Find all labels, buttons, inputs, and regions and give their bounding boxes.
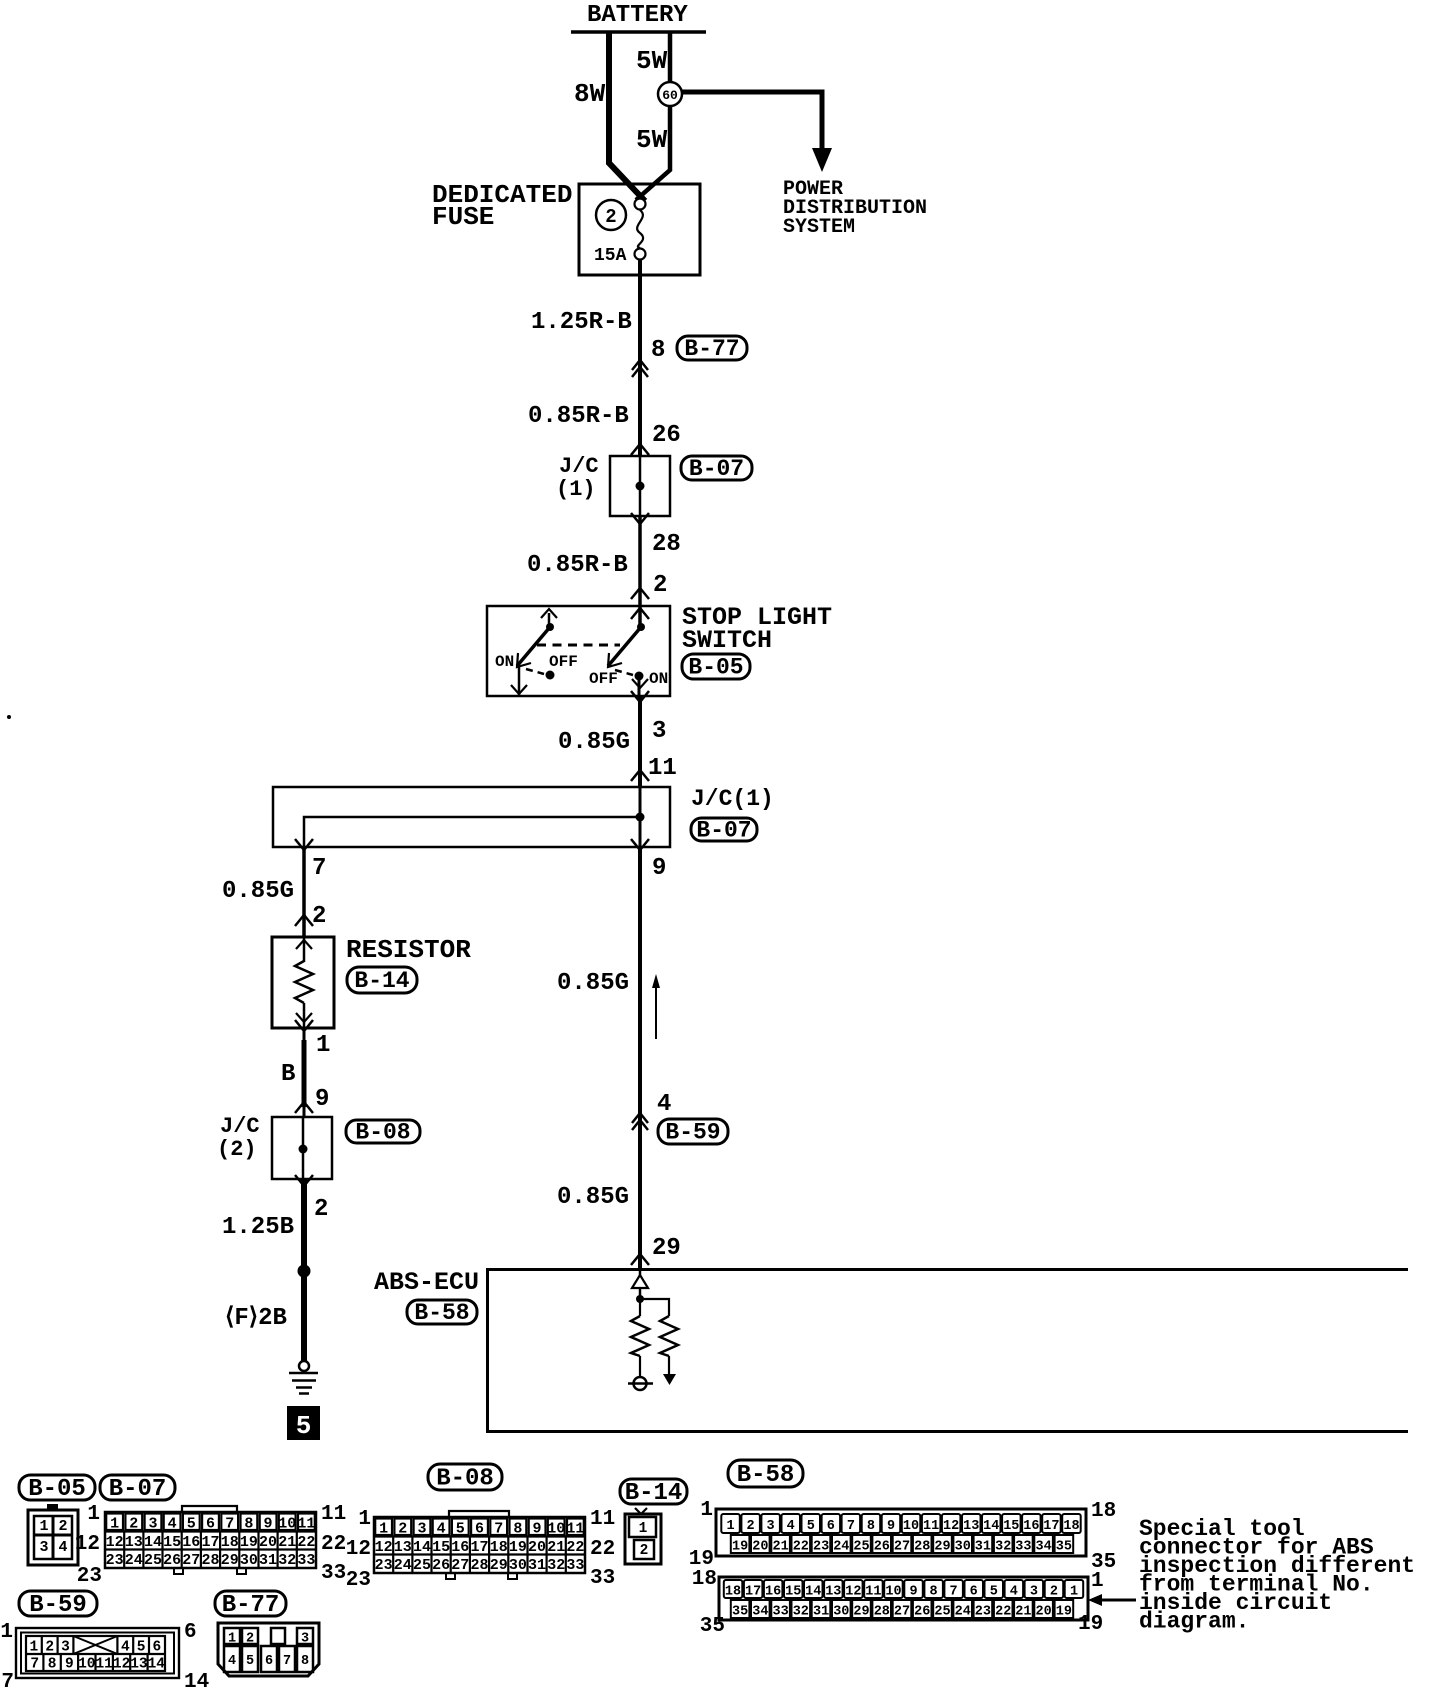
- svg-text:33: 33: [566, 1557, 584, 1574]
- svg-text:21: 21: [278, 1534, 296, 1551]
- svg-text:15: 15: [163, 1534, 181, 1551]
- svg-text:16: 16: [451, 1539, 469, 1556]
- svg-text:28: 28: [874, 1605, 890, 1620]
- svg-text:0.85G: 0.85G: [222, 878, 294, 905]
- svg-text:6: 6: [827, 1519, 835, 1534]
- svg-text:B-77: B-77: [684, 336, 739, 362]
- svg-text:19: 19: [1078, 1613, 1103, 1636]
- svg-text:16: 16: [765, 1585, 781, 1600]
- svg-text:5W: 5W: [636, 46, 668, 76]
- svg-text:27: 27: [894, 1540, 910, 1555]
- svg-text:11: 11: [566, 1521, 584, 1538]
- svg-text:31: 31: [813, 1605, 829, 1620]
- svg-text:25: 25: [853, 1540, 869, 1555]
- svg-text:11: 11: [321, 1503, 346, 1526]
- svg-text:9: 9: [532, 1521, 541, 1538]
- svg-text:6: 6: [265, 1654, 273, 1669]
- svg-text:10: 10: [278, 1516, 296, 1533]
- svg-text:8W: 8W: [574, 79, 606, 109]
- svg-text:23: 23: [346, 1569, 371, 1592]
- svg-text:6: 6: [206, 1516, 215, 1533]
- svg-text:2: 2: [653, 572, 667, 599]
- svg-text:J/C: J/C: [559, 454, 599, 479]
- svg-text:8: 8: [244, 1516, 253, 1533]
- svg-text:3: 3: [1030, 1585, 1038, 1600]
- svg-text:9: 9: [887, 1519, 895, 1534]
- svg-text:26: 26: [914, 1605, 930, 1620]
- svg-text:3: 3: [39, 1539, 48, 1556]
- svg-text:B-08: B-08: [355, 1119, 410, 1145]
- svg-text:7: 7: [312, 855, 326, 882]
- svg-text:27: 27: [894, 1605, 910, 1620]
- svg-text:SYSTEM: SYSTEM: [783, 216, 855, 239]
- svg-text:0.85G: 0.85G: [558, 729, 630, 756]
- svg-text:1: 1: [0, 1621, 13, 1644]
- svg-text:33: 33: [590, 1567, 615, 1590]
- svg-text:11: 11: [648, 755, 677, 782]
- svg-text:B-59: B-59: [29, 1592, 87, 1619]
- svg-text:7: 7: [1, 1671, 14, 1690]
- svg-text:1: 1: [110, 1516, 119, 1533]
- svg-text:13: 13: [394, 1539, 412, 1556]
- svg-text:B-58: B-58: [737, 1462, 795, 1489]
- svg-text:12: 12: [375, 1539, 393, 1556]
- svg-text:35: 35: [732, 1605, 748, 1620]
- svg-text:15: 15: [785, 1585, 801, 1600]
- svg-text:(2): (2): [217, 1137, 257, 1162]
- svg-text:6: 6: [184, 1621, 197, 1644]
- svg-text:21: 21: [1015, 1605, 1031, 1620]
- svg-text:19: 19: [1056, 1605, 1072, 1620]
- svg-text:5: 5: [246, 1654, 254, 1669]
- svg-text:8: 8: [930, 1585, 938, 1600]
- svg-text:8: 8: [48, 1657, 57, 1673]
- svg-text:3: 3: [61, 1640, 70, 1656]
- svg-text:1.25R-B: 1.25R-B: [531, 309, 632, 336]
- svg-text:9: 9: [315, 1086, 329, 1113]
- svg-text:22: 22: [566, 1539, 584, 1556]
- svg-text:4: 4: [787, 1519, 795, 1534]
- svg-text:B-14: B-14: [625, 1480, 683, 1507]
- svg-text:10: 10: [547, 1521, 565, 1538]
- svg-text:29: 29: [934, 1540, 950, 1555]
- svg-text:18: 18: [221, 1534, 239, 1551]
- svg-text:11: 11: [297, 1516, 315, 1533]
- svg-text:20: 20: [528, 1539, 546, 1556]
- svg-text:22: 22: [793, 1540, 809, 1555]
- svg-text:2: 2: [58, 1518, 67, 1535]
- svg-text:ON: ON: [495, 653, 514, 671]
- svg-text:33: 33: [321, 1562, 346, 1585]
- svg-text:diagram.: diagram.: [1139, 1609, 1249, 1635]
- svg-text:19: 19: [240, 1534, 258, 1551]
- svg-text:5W: 5W: [636, 125, 668, 155]
- svg-text:18: 18: [1063, 1519, 1079, 1534]
- svg-text:22: 22: [590, 1538, 615, 1561]
- svg-text:29: 29: [490, 1557, 508, 1574]
- svg-text:22: 22: [297, 1534, 315, 1551]
- svg-text:5: 5: [187, 1516, 196, 1533]
- svg-text:31: 31: [259, 1552, 277, 1569]
- svg-text:32: 32: [547, 1557, 565, 1574]
- svg-text:2: 2: [640, 1543, 649, 1559]
- svg-text:29: 29: [853, 1605, 869, 1620]
- svg-text:2: 2: [246, 1632, 254, 1647]
- svg-text:4: 4: [168, 1516, 177, 1533]
- svg-text:1: 1: [316, 1032, 330, 1059]
- svg-text:7: 7: [494, 1521, 503, 1538]
- svg-text:9: 9: [909, 1585, 917, 1600]
- svg-text:4: 4: [657, 1091, 671, 1118]
- svg-text:23: 23: [375, 1557, 393, 1574]
- svg-text:22: 22: [321, 1533, 346, 1556]
- svg-text:10: 10: [885, 1585, 901, 1600]
- svg-text:12: 12: [75, 1533, 100, 1556]
- svg-text:1: 1: [700, 1499, 713, 1522]
- svg-text:20: 20: [1035, 1605, 1051, 1620]
- svg-text:12: 12: [845, 1585, 861, 1600]
- svg-text:B-08: B-08: [436, 1465, 494, 1492]
- svg-text:ABS-ECU: ABS-ECU: [374, 1268, 479, 1297]
- svg-text:J/C: J/C: [220, 1114, 260, 1139]
- svg-text:1: 1: [379, 1521, 388, 1538]
- svg-text:19: 19: [509, 1539, 527, 1556]
- svg-text:24: 24: [955, 1605, 971, 1620]
- svg-text:30: 30: [240, 1552, 258, 1569]
- svg-text:B-05: B-05: [688, 654, 743, 680]
- svg-text:2: 2: [129, 1516, 138, 1533]
- svg-text:ON: ON: [649, 670, 668, 688]
- svg-text:5: 5: [296, 1411, 312, 1441]
- svg-text:28: 28: [201, 1552, 219, 1569]
- svg-text:16: 16: [1023, 1519, 1039, 1534]
- svg-text:6: 6: [970, 1585, 978, 1600]
- svg-text:7: 7: [283, 1654, 291, 1669]
- svg-text:25: 25: [934, 1605, 950, 1620]
- svg-text:17: 17: [470, 1539, 488, 1556]
- svg-text:28: 28: [470, 1557, 488, 1574]
- svg-text:28: 28: [652, 531, 681, 558]
- svg-text:2: 2: [605, 206, 616, 228]
- svg-text:21: 21: [772, 1540, 788, 1555]
- svg-text:8: 8: [651, 337, 665, 364]
- svg-text:16: 16: [182, 1534, 200, 1551]
- svg-text:2: 2: [45, 1640, 54, 1656]
- svg-text:31: 31: [528, 1557, 546, 1574]
- svg-text:20: 20: [752, 1540, 768, 1555]
- svg-text:1: 1: [30, 1640, 39, 1656]
- svg-text:34: 34: [752, 1605, 768, 1620]
- svg-text:13: 13: [963, 1519, 979, 1534]
- svg-text:35: 35: [700, 1615, 725, 1638]
- svg-text:B-07: B-07: [109, 1476, 167, 1503]
- svg-text:7: 7: [30, 1657, 39, 1673]
- svg-text:3: 3: [301, 1632, 309, 1647]
- svg-text:30: 30: [955, 1540, 971, 1555]
- svg-text:1: 1: [1070, 1585, 1078, 1600]
- svg-text:26: 26: [652, 422, 681, 449]
- svg-text:2: 2: [1050, 1585, 1058, 1600]
- svg-text:11: 11: [923, 1519, 939, 1534]
- svg-text:1.25B: 1.25B: [222, 1214, 294, 1241]
- svg-text:23: 23: [77, 1565, 102, 1588]
- svg-text:1: 1: [358, 1508, 371, 1531]
- svg-text:14: 14: [983, 1519, 999, 1534]
- svg-text:2: 2: [747, 1519, 755, 1534]
- svg-text:14: 14: [184, 1671, 209, 1690]
- svg-text:17: 17: [745, 1585, 761, 1600]
- svg-text:11: 11: [95, 1657, 113, 1673]
- svg-text:15: 15: [432, 1539, 450, 1556]
- svg-text:60: 60: [662, 88, 678, 103]
- svg-text:14: 14: [148, 1657, 166, 1673]
- svg-text:0.85G: 0.85G: [557, 1184, 629, 1211]
- svg-text:18: 18: [1091, 1500, 1116, 1523]
- svg-text:1: 1: [639, 1521, 648, 1537]
- svg-text:27: 27: [182, 1552, 200, 1569]
- svg-text:2: 2: [314, 1196, 328, 1223]
- svg-text:9: 9: [65, 1657, 74, 1673]
- svg-text:1: 1: [228, 1632, 236, 1647]
- svg-text:5: 5: [456, 1521, 465, 1538]
- svg-text:23: 23: [106, 1552, 124, 1569]
- svg-text:6: 6: [153, 1640, 162, 1656]
- svg-text:B: B: [281, 1061, 295, 1088]
- svg-text:1: 1: [726, 1519, 734, 1534]
- svg-text:0.85G: 0.85G: [557, 970, 629, 997]
- svg-text:21: 21: [547, 1539, 565, 1556]
- svg-text:14: 14: [144, 1534, 162, 1551]
- svg-text:6: 6: [475, 1521, 484, 1538]
- svg-text:14: 14: [413, 1539, 431, 1556]
- svg-text:18: 18: [725, 1585, 741, 1600]
- svg-text:BATTERY: BATTERY: [587, 2, 688, 29]
- svg-text:8: 8: [513, 1521, 522, 1538]
- svg-text:5: 5: [807, 1519, 815, 1534]
- svg-text:33: 33: [297, 1552, 315, 1569]
- svg-text:28: 28: [914, 1540, 930, 1555]
- svg-text:2: 2: [312, 903, 326, 930]
- svg-text:0.85R-B: 0.85R-B: [527, 552, 628, 579]
- svg-text:OFF: OFF: [549, 653, 578, 671]
- svg-text:18: 18: [490, 1539, 508, 1556]
- svg-text:12: 12: [106, 1534, 124, 1551]
- svg-text:OFF: OFF: [589, 670, 618, 688]
- svg-text:3: 3: [417, 1521, 426, 1538]
- svg-text:2: 2: [398, 1521, 407, 1538]
- svg-text:19: 19: [732, 1540, 748, 1555]
- svg-text:7: 7: [847, 1519, 855, 1534]
- svg-text:24: 24: [833, 1540, 849, 1555]
- svg-text:4: 4: [1010, 1585, 1018, 1600]
- svg-text:B-59: B-59: [665, 1119, 720, 1145]
- svg-text:SWITCH: SWITCH: [682, 626, 772, 655]
- svg-text:11: 11: [590, 1508, 615, 1531]
- svg-text:5: 5: [137, 1640, 146, 1656]
- svg-text:0.85R-B: 0.85R-B: [528, 403, 629, 430]
- svg-text:3: 3: [148, 1516, 157, 1533]
- svg-text:24: 24: [125, 1552, 143, 1569]
- svg-text:23: 23: [975, 1605, 991, 1620]
- svg-text:10: 10: [78, 1657, 95, 1673]
- svg-text:25: 25: [144, 1552, 162, 1569]
- svg-text:20: 20: [259, 1534, 277, 1551]
- svg-text:22: 22: [995, 1605, 1011, 1620]
- svg-text:26: 26: [874, 1540, 890, 1555]
- svg-text:B-58: B-58: [414, 1300, 469, 1326]
- svg-text:18: 18: [692, 1568, 717, 1591]
- svg-text:29: 29: [652, 1235, 681, 1262]
- svg-text:12: 12: [113, 1657, 130, 1673]
- svg-text:1: 1: [39, 1518, 48, 1535]
- svg-text:7: 7: [225, 1516, 234, 1533]
- svg-text:FUSE: FUSE: [432, 202, 494, 232]
- svg-text:4: 4: [121, 1640, 130, 1656]
- svg-text:B-77: B-77: [222, 1592, 280, 1619]
- svg-text:15A: 15A: [594, 246, 627, 266]
- svg-text:34: 34: [1035, 1540, 1051, 1555]
- svg-text:3: 3: [652, 718, 666, 745]
- svg-text:B-14: B-14: [354, 968, 409, 994]
- svg-text:17: 17: [1043, 1519, 1059, 1534]
- svg-text:23: 23: [813, 1540, 829, 1555]
- svg-text:14: 14: [805, 1585, 821, 1600]
- svg-text:35: 35: [1056, 1540, 1072, 1555]
- svg-text:33: 33: [772, 1605, 788, 1620]
- svg-text:1: 1: [1091, 1570, 1104, 1593]
- svg-text:12: 12: [943, 1519, 959, 1534]
- svg-text:8: 8: [867, 1519, 875, 1534]
- svg-text:25: 25: [413, 1557, 431, 1574]
- svg-text:8: 8: [301, 1654, 309, 1669]
- svg-text:3: 3: [767, 1519, 775, 1534]
- svg-text:4: 4: [58, 1539, 67, 1556]
- svg-text:(1): (1): [556, 477, 596, 502]
- svg-text:5: 5: [990, 1585, 998, 1600]
- svg-text:9: 9: [263, 1516, 272, 1533]
- svg-text:10: 10: [903, 1519, 919, 1534]
- svg-text:12: 12: [346, 1538, 371, 1561]
- svg-text:26: 26: [163, 1552, 181, 1569]
- svg-text:B-07: B-07: [689, 456, 744, 482]
- svg-text:29: 29: [221, 1552, 239, 1569]
- svg-text:26: 26: [432, 1557, 450, 1574]
- svg-text:33: 33: [1015, 1540, 1031, 1555]
- svg-text:7: 7: [950, 1585, 958, 1600]
- svg-text:4: 4: [437, 1521, 446, 1538]
- svg-text:31: 31: [975, 1540, 991, 1555]
- svg-text:32: 32: [995, 1540, 1011, 1555]
- svg-text:B-07: B-07: [696, 817, 751, 843]
- svg-text:13: 13: [125, 1534, 143, 1551]
- svg-text:RESISTOR: RESISTOR: [346, 935, 471, 965]
- svg-text:⟨F⟩2B: ⟨F⟩2B: [225, 1305, 287, 1332]
- svg-text:17: 17: [201, 1534, 219, 1551]
- svg-text:11: 11: [865, 1585, 881, 1600]
- svg-text:B-05: B-05: [28, 1476, 86, 1503]
- svg-text:24: 24: [394, 1557, 412, 1574]
- svg-text:30: 30: [509, 1557, 527, 1574]
- svg-text:30: 30: [833, 1605, 849, 1620]
- svg-text:4: 4: [228, 1654, 236, 1669]
- svg-text:1: 1: [87, 1503, 100, 1526]
- svg-text:13: 13: [130, 1657, 147, 1673]
- svg-text:15: 15: [1003, 1519, 1019, 1534]
- svg-text:27: 27: [451, 1557, 469, 1574]
- svg-text:J/C(1): J/C(1): [691, 786, 774, 812]
- svg-text:32: 32: [793, 1605, 809, 1620]
- svg-text:32: 32: [278, 1552, 296, 1569]
- svg-text:9: 9: [652, 855, 666, 882]
- svg-text:13: 13: [825, 1585, 841, 1600]
